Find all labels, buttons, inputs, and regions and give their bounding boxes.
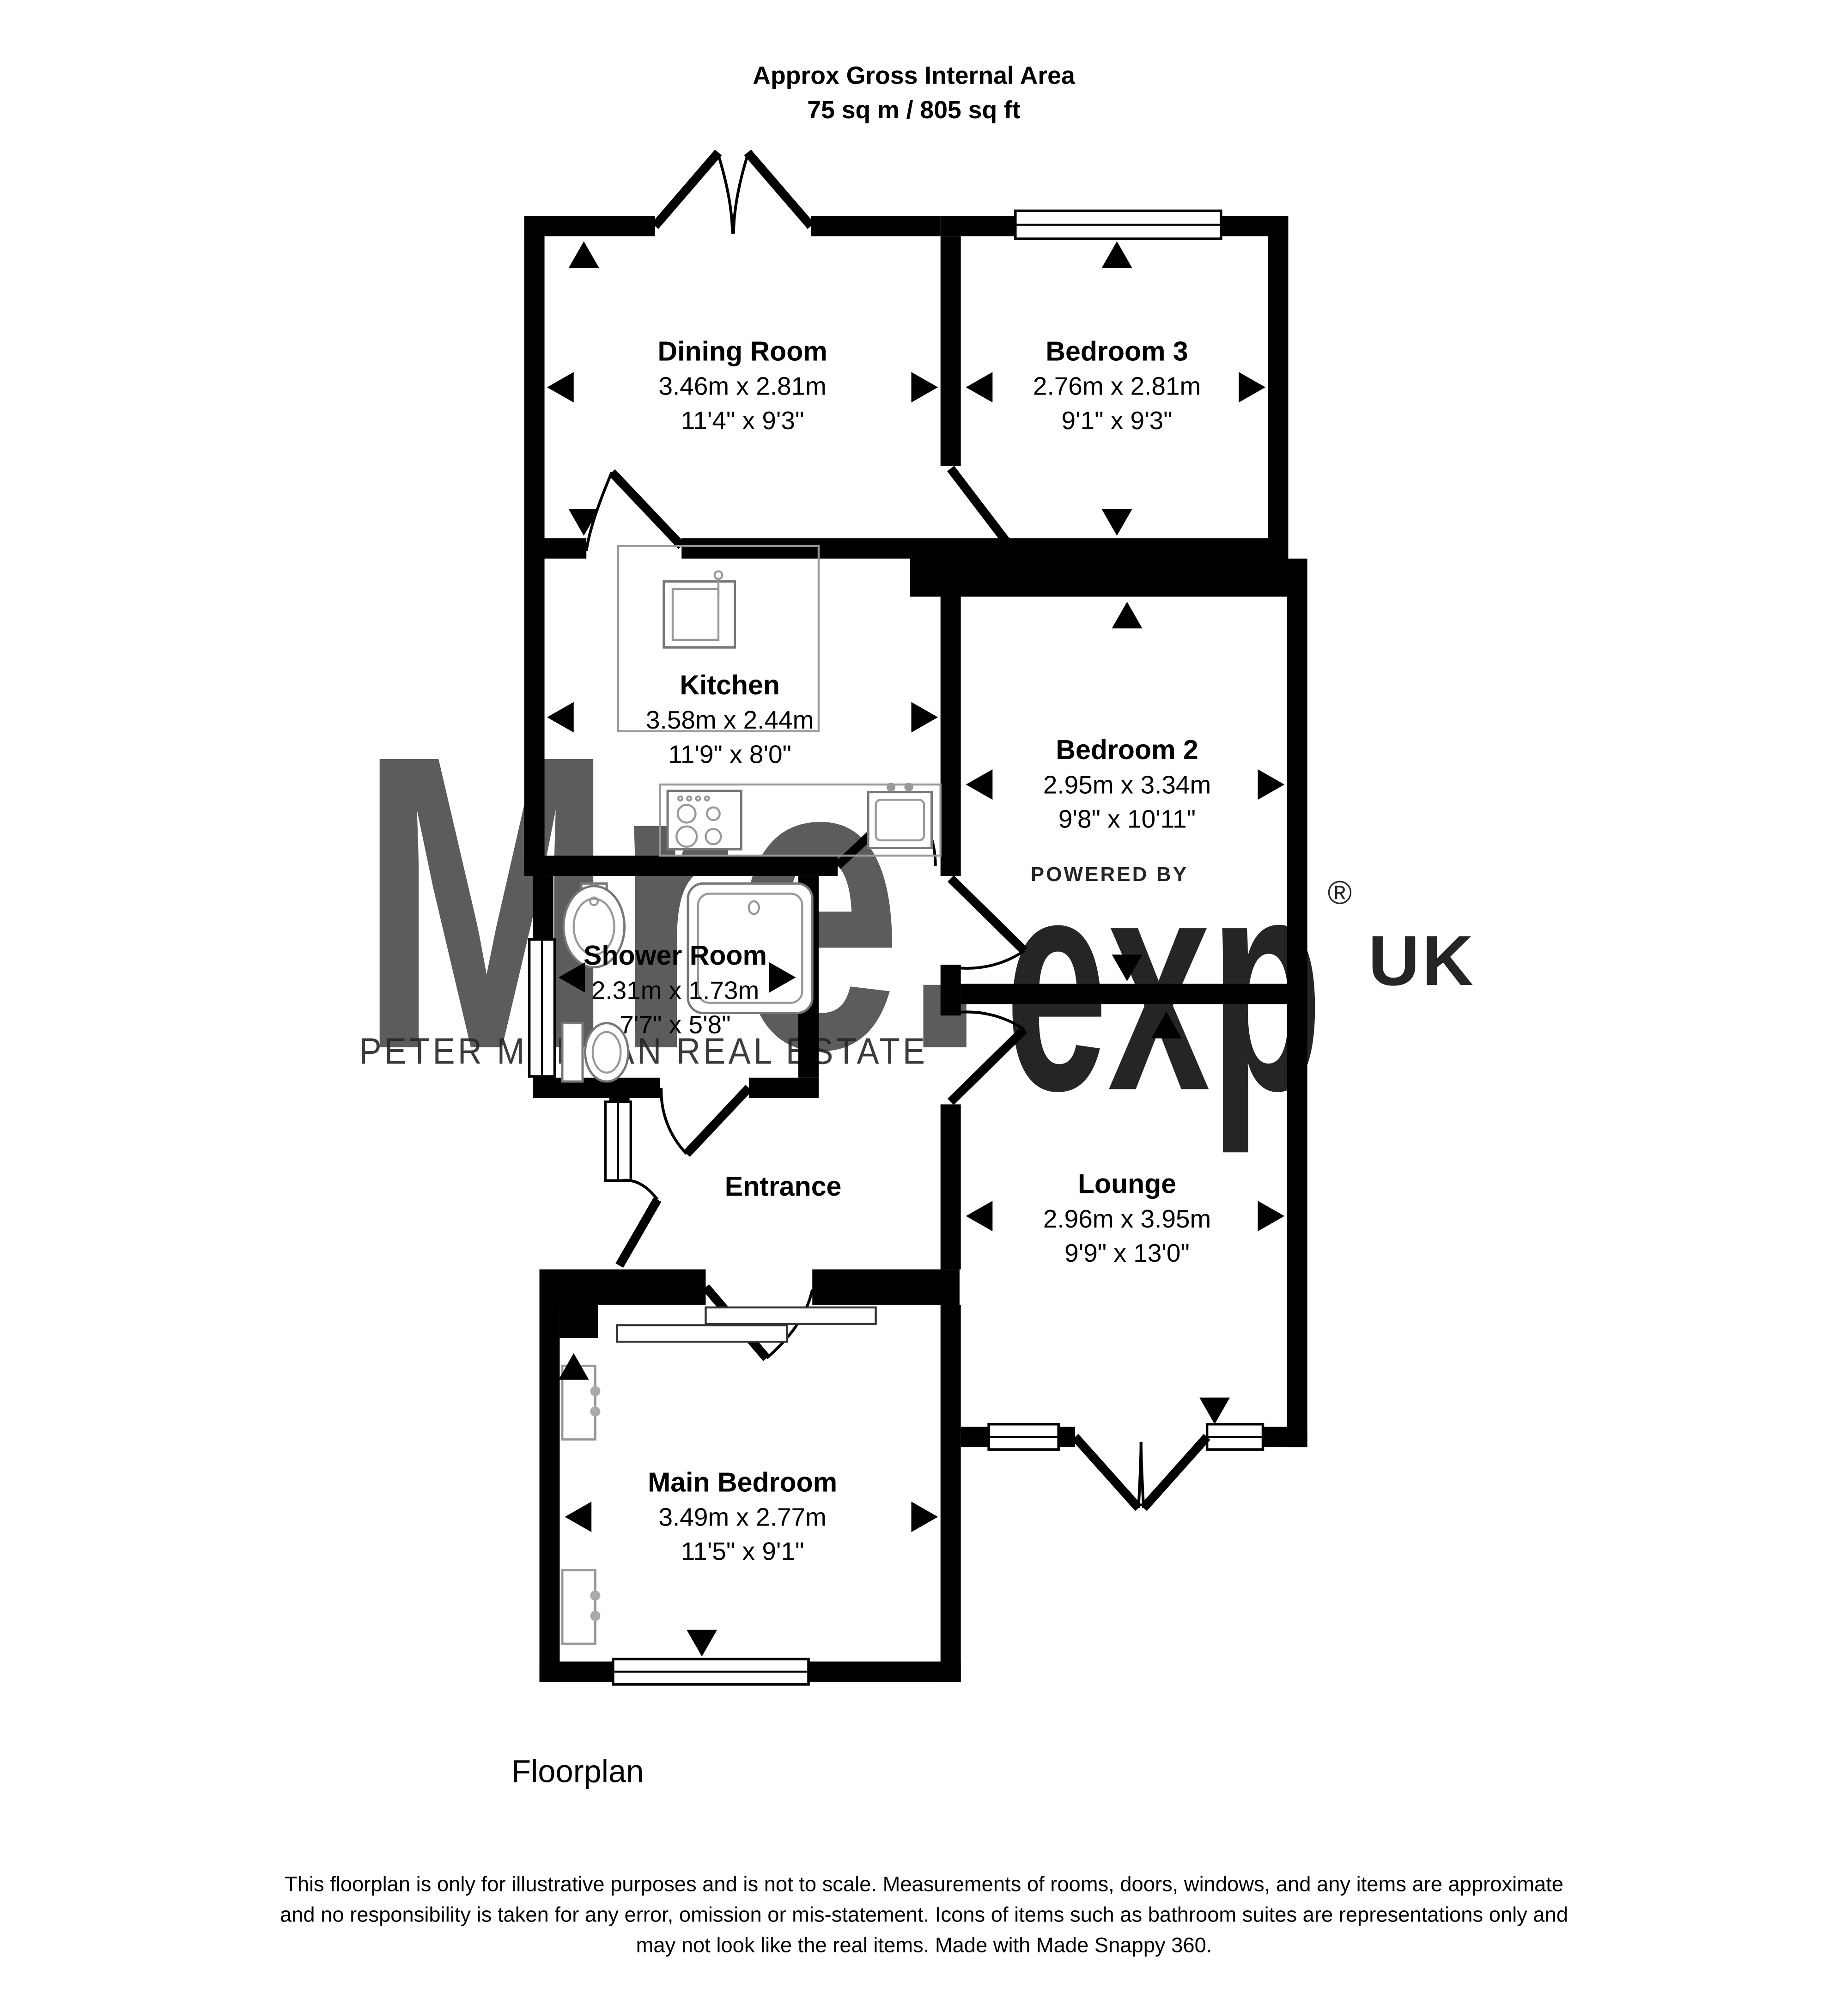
room-name: Lounge [1078,1169,1176,1199]
disclaimer-line: may not look like the real items. Made w… [636,1933,1212,1957]
room-dim-imperial: 9'1" x 9'3" [1061,406,1172,435]
watermark-uk: UK [1368,921,1476,1000]
window [1015,211,1221,238]
kitchen-sink-top [664,571,735,648]
window [1207,1424,1263,1450]
room-dim-imperial: 11'9" x 8'0" [668,740,791,768]
watermark-registered: ® [1328,874,1352,911]
cabinet [562,1570,600,1644]
room-dim-imperial: 11'4" x 9'3" [681,406,804,435]
room-label-dining: Dining Room 3.46m x 2.81m 11'4" x 9'3" [657,336,827,435]
room-dim-imperial: 9'8" x 10'11" [1058,805,1196,833]
floorplan-label: Floorplan [511,1753,644,1789]
toilet [562,1023,628,1082]
room-name: Entrance [725,1171,842,1202]
disclaimer-line: This floorplan is only for illustrative … [285,1872,1563,1896]
floorplan-page: Mre. PETER MORGAN REAL ESTATE POWERED BY… [0,0,1848,2012]
page-title: Approx Gross Internal Area [753,62,1076,90]
room-name: Shower Room [584,940,767,971]
room-label-entrance: Entrance [725,1171,842,1202]
room-dim-metric: 2.31m x 1.73m [591,976,759,1004]
window [989,1424,1058,1450]
floorplan-svg: Mre. PETER MORGAN REAL ESTATE POWERED BY… [0,0,1848,2012]
room-dim-imperial: 9'9" x 13'0" [1064,1239,1190,1267]
room-name: Kitchen [680,670,780,700]
room-dim-metric: 3.58m x 2.44m [646,705,814,734]
room-dim-metric: 3.49m x 2.77m [658,1502,826,1531]
room-name: Dining Room [657,336,827,367]
wardrobe [705,1307,875,1324]
room-dim-metric: 2.95m x 3.34m [1043,770,1211,799]
page-subtitle: 75 sq m / 805 sq ft [807,97,1021,124]
disclaimer-line: and no responsibility is taken for any e… [280,1903,1568,1927]
wardrobe [617,1325,787,1342]
room-dim-metric: 2.96m x 3.95m [1043,1204,1211,1233]
hob [668,791,741,849]
kitchen-sink-lower [868,783,931,848]
room-dim-metric: 3.46m x 2.81m [658,372,826,401]
room-dim-metric: 2.76m x 2.81m [1033,372,1201,401]
room-name: Bedroom 3 [1046,336,1188,367]
room-dim-imperial: 11'5" x 9'1" [681,1537,804,1566]
window [605,1102,631,1180]
window [529,939,555,1076]
room-name: Bedroom 2 [1056,735,1198,765]
window [613,1659,808,1684]
room-dim-imperial: 7'7" x 5'8" [620,1010,730,1039]
room-name: Main Bedroom [648,1467,837,1497]
room-label-bedroom2: Bedroom 2 2.95m x 3.34m 9'8" x 10'11" [1043,735,1211,833]
